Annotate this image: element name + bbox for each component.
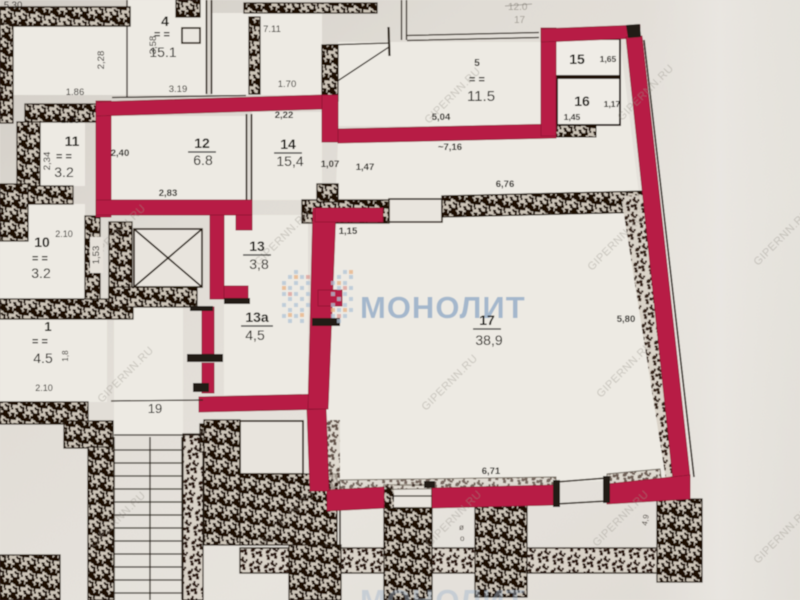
svg-text:15,4: 15,4: [276, 153, 303, 169]
svg-text:= =: = =: [469, 74, 485, 86]
svg-text:1.70: 1.70: [278, 79, 297, 90]
svg-text:1,07: 1,07: [321, 159, 340, 170]
svg-text:2,28: 2,28: [96, 51, 107, 70]
svg-text:МОНОЛИТ: МОНОЛИТ: [360, 583, 526, 600]
svg-text:14: 14: [280, 136, 296, 152]
svg-text:16: 16: [574, 93, 590, 109]
svg-text:5.30: 5.30: [4, 0, 23, 11]
svg-text:7.11: 7.11: [263, 24, 281, 35]
svg-text:3,58: 3,58: [148, 36, 159, 55]
svg-text:13: 13: [249, 238, 265, 254]
svg-text:ø: ø: [459, 523, 464, 532]
svg-text:2,22: 2,22: [275, 110, 294, 121]
svg-text:1,47: 1,47: [356, 162, 375, 173]
svg-text:4,5: 4,5: [245, 327, 265, 343]
svg-text:12: 12: [194, 135, 210, 151]
svg-text:2.10: 2.10: [35, 383, 53, 393]
svg-text:5: 5: [474, 58, 480, 69]
svg-text:4.5: 4.5: [33, 350, 53, 366]
svg-text:11: 11: [65, 133, 80, 149]
svg-text:3.19: 3.19: [169, 84, 188, 95]
svg-text:3,8: 3,8: [249, 256, 269, 272]
svg-text:38,9: 38,9: [475, 332, 502, 348]
svg-text:1,15: 1,15: [339, 226, 358, 237]
svg-text:10: 10: [34, 234, 50, 250]
svg-text:1.86: 1.86: [66, 87, 85, 98]
svg-text:= =: = =: [32, 253, 48, 265]
svg-text:2,83: 2,83: [159, 188, 178, 199]
svg-text:= =: = =: [32, 336, 48, 348]
svg-text:4: 4: [161, 13, 169, 29]
svg-text:15: 15: [569, 51, 585, 67]
svg-text:6.8: 6.8: [193, 152, 213, 168]
svg-text:~7,16: ~7,16: [438, 142, 462, 153]
svg-text:1,45: 1,45: [564, 112, 581, 122]
svg-text:5,04: 5,04: [432, 112, 451, 123]
svg-text:17: 17: [514, 15, 526, 26]
svg-text:11.5: 11.5: [467, 88, 495, 105]
svg-text:o: o: [460, 534, 465, 543]
svg-text:3.2: 3.2: [31, 265, 51, 281]
svg-text:12.0: 12.0: [508, 2, 528, 13]
svg-text:1.36: 1.36: [61, 115, 80, 126]
svg-text:1,53: 1,53: [91, 246, 102, 265]
svg-text:3.2: 3.2: [54, 164, 74, 180]
svg-text:5,80: 5,80: [617, 314, 636, 325]
svg-text:1,65: 1,65: [600, 54, 617, 64]
svg-text:МОНОЛИТ: МОНОЛИТ: [360, 290, 526, 325]
svg-text:1,17: 1,17: [604, 99, 621, 109]
svg-text:1: 1: [44, 319, 51, 334]
svg-text:2,34: 2,34: [42, 152, 53, 171]
svg-text:2.10: 2.10: [55, 229, 73, 239]
svg-text:= =: = =: [56, 151, 72, 163]
svg-text:19: 19: [148, 401, 162, 416]
svg-text:1,8: 1,8: [61, 350, 70, 362]
svg-text:2,40: 2,40: [111, 148, 130, 159]
svg-text:6,76: 6,76: [496, 179, 515, 190]
svg-text:6,71: 6,71: [482, 466, 501, 477]
svg-text:17: 17: [479, 312, 495, 328]
svg-text:13а: 13а: [245, 309, 269, 325]
